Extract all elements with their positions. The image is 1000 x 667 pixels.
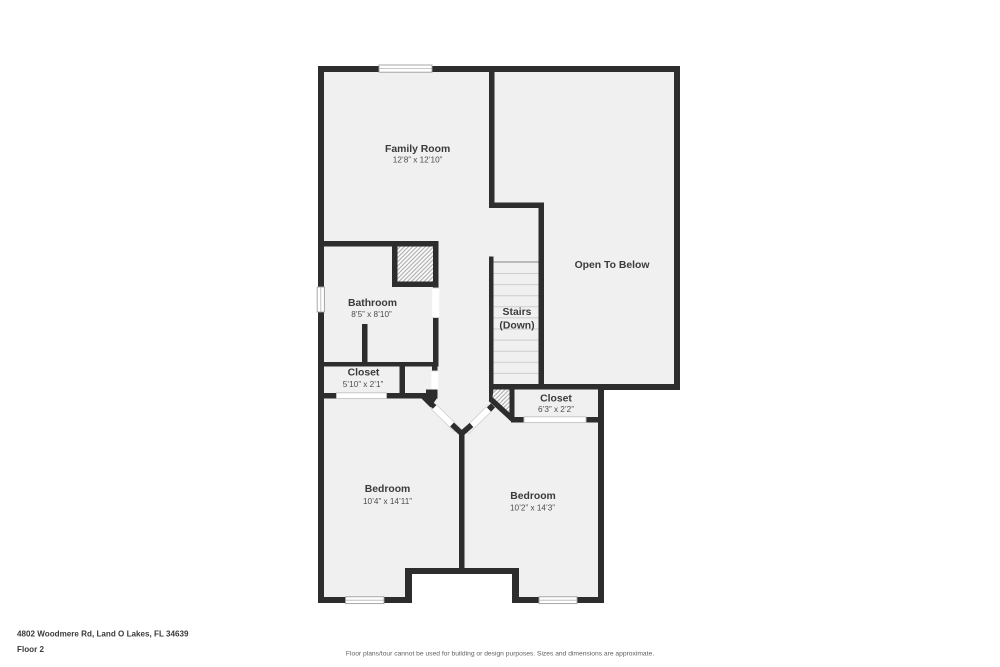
svg-text:(Down): (Down)	[499, 321, 534, 332]
svg-text:10’2” x 14’3”: 10’2” x 14’3”	[510, 504, 555, 513]
svg-text:Closet: Closet	[348, 368, 380, 379]
svg-text:10’4” x 14’11”: 10’4” x 14’11”	[363, 497, 412, 506]
svg-text:Closet: Closet	[540, 394, 572, 405]
svg-text:Bedroom: Bedroom	[510, 491, 556, 502]
svg-text:Bathroom: Bathroom	[348, 298, 397, 309]
svg-text:Stairs: Stairs	[503, 307, 532, 318]
svg-text:4802 Woodmere Rd, Land O Lakes: 4802 Woodmere Rd, Land O Lakes, FL 34639	[17, 630, 189, 639]
svg-text:Bedroom: Bedroom	[365, 484, 411, 495]
svg-text:Floor plans/tour cannot be use: Floor plans/tour cannot be used for buil…	[346, 651, 654, 658]
svg-text:5’10” x 2’1”: 5’10” x 2’1”	[343, 380, 384, 389]
svg-text:Floor 2: Floor 2	[17, 645, 44, 654]
svg-text:12’8” x 12’10”: 12’8” x 12’10”	[393, 156, 443, 165]
svg-text:8’5” x 8’10”: 8’5” x 8’10”	[351, 310, 392, 319]
svg-text:6’3” x 2’2”: 6’3” x 2’2”	[538, 405, 574, 414]
svg-text:Family Room: Family Room	[385, 144, 450, 155]
svg-text:Open To Below: Open To Below	[575, 260, 651, 271]
